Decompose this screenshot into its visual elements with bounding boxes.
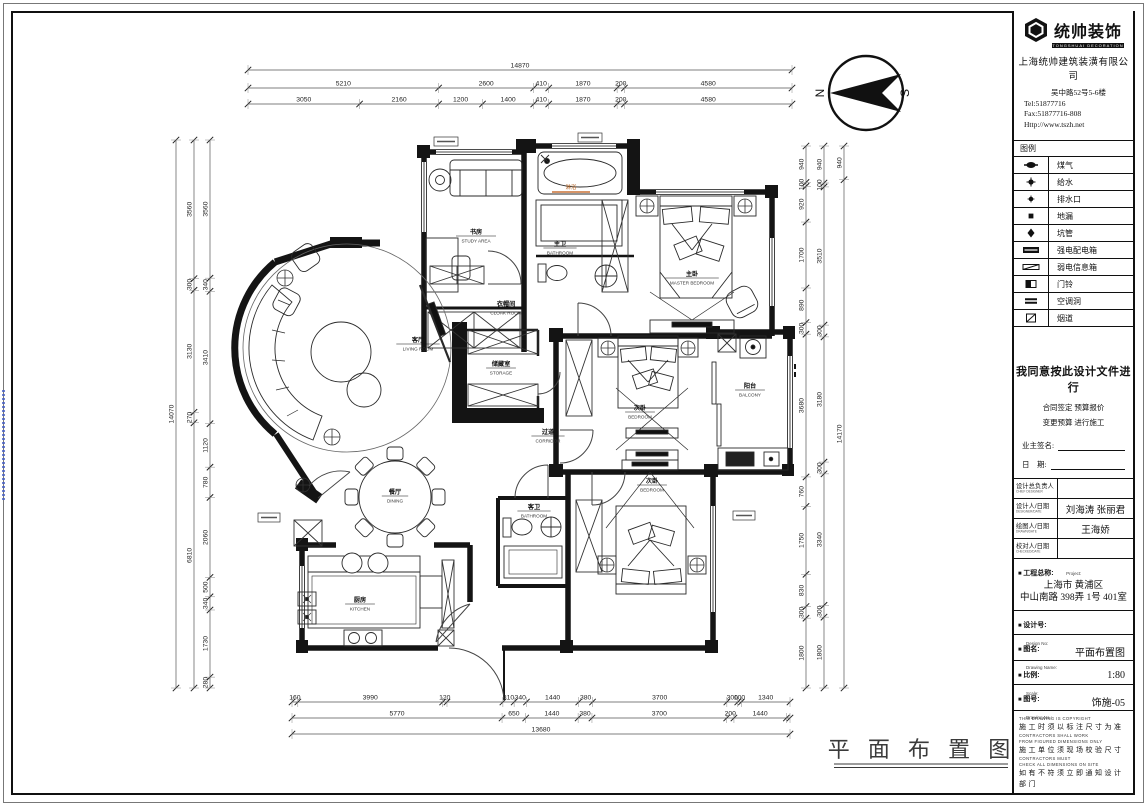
drawing-no-section: 图号: Drawing No.: 饰施-05 [1014,685,1133,711]
dimension-text: 1340 [758,695,773,702]
dimension-text: 410 [536,81,548,88]
svg-text:DINING: DINING [387,499,404,504]
dimension-text: 300 [187,279,194,291]
dimension-text: 14170 [837,424,844,443]
dimension-text: 3130 [187,344,194,359]
flue-icon [1014,310,1049,326]
svg-text:阳台: 阳台 [744,382,756,390]
personnel-sublabel: CHECKED/DATE [1016,550,1053,554]
floor-drain-icon [1014,208,1049,224]
bathtub [538,152,622,194]
dimension-text: 340 [203,279,210,291]
dimension-text: 4580 [701,81,716,88]
agreement-line3: 变更预算 进行施工 [1014,417,1133,428]
dimension-text: 500 [203,581,210,593]
drawing-no-label: 图号: [1018,696,1040,703]
dimension-text: 340 [203,598,210,610]
scale-value: 1:80 [1107,670,1125,681]
legend-row: 排水口 [1014,191,1133,208]
dimension-row: 35603403410112078020605003401730280 [203,137,216,691]
drawing-no-value: 饰施-05 [1092,694,1125,709]
dimension-text: 3340 [817,532,824,547]
note-line: 施工单位须现场校验尺寸 [1019,745,1130,756]
room-label: 主卫BATHROOM [543,240,576,256]
room-label: 餐厅DINING [382,488,408,504]
svg-text:次卧: 次卧 [646,477,659,485]
scale-label: 比例: [1018,672,1040,679]
drain-outlet-icon [1014,191,1049,207]
drawing-no-sublabel: Drawing No.: [1026,715,1052,720]
dimension-text: 650 [508,711,520,718]
svg-text:BALCONY: BALCONY [739,393,761,398]
dimension-text: 380 [579,711,591,718]
personnel-row: 校对人/日期CHECKED/DATE [1014,539,1133,559]
dimension-text: 3050 [296,97,311,104]
title-block: 统帅装饰 TONGSHUAI DECORATION 上海统帅建筑装潢有限公司 吴… [1012,11,1133,793]
brand-logo-subtext: TONGSHUAI DECORATION [1052,43,1123,48]
ac-hole-icon [1014,293,1049,309]
room-label: 厨房KITCHEN [345,596,375,612]
room-label: 过道CORRIDOR [531,428,564,444]
dimension-text: 780 [203,476,210,488]
dimension-text: 3180 [817,392,824,407]
dimension-text: 2600 [479,81,494,88]
scale-section: 比例: Scale: 1:80 [1014,661,1133,685]
svg-text:储藏室: 储藏室 [491,360,511,368]
personnel-label: 设计总负责人CHIEF DESIGNER [1014,479,1058,498]
legend-label: 弱电信息箱 [1049,262,1097,273]
dimension-text: 1440 [544,711,559,718]
svg-text:STUDY AREA: STUDY AREA [461,239,491,244]
dimension-row: 14070 [169,137,182,691]
owner-sign-line [1058,441,1125,451]
bar-stool-2 [368,553,388,573]
bed2-tv-boards [616,388,688,460]
legend-row: 烟道 [1014,310,1133,327]
room-label: 阳台BALCONY [735,382,765,398]
legend-label: 坑管 [1049,228,1073,239]
study-side-table [429,169,451,191]
company-fax: Fax:51877716-808 [1024,109,1133,120]
svg-text:KITCHEN: KITCHEN [350,607,370,612]
water-supply-icon [1014,174,1049,190]
legend-label: 烟道 [1049,313,1073,324]
legend-row: 坑管 [1014,225,1133,242]
legend-label: 排水口 [1049,194,1081,205]
dimension-text: 300 [817,462,824,474]
dimension-text: 340 [515,695,527,702]
personnel-row: 设计总负责人CHIEF DESIGNER [1014,479,1133,499]
drawing-name-value: 平面布置图 [1075,644,1125,659]
dimension-text: 1400 [501,97,516,104]
legend-row: 弱电信息箱 [1014,259,1133,276]
dimension-text: 300 [817,605,824,617]
owner-sign-label: 业主签名: [1022,440,1054,451]
dimension-text: 200 [615,97,627,104]
dimension-text: 3410 [203,350,210,365]
personnel-row: 绘图人/日期DRAWN/DATE王海娇 [1014,519,1133,539]
legend-table: 煤气给水排水口地漏坑管强电配电箱弱电信息箱门铃空调洞烟道 [1014,157,1133,327]
dimension-text: 300 [817,325,824,337]
legend-row: 强电配电箱 [1014,242,1133,259]
svg-text:CLOAK ROOM: CLOAK ROOM [490,311,521,316]
dimension-text: 1870 [575,81,590,88]
dimension-text: 300 [799,322,806,334]
dimension-text: 830 [799,585,806,597]
room-label: 次卧BEDROOM [637,477,667,493]
dimension-text: 2060 [203,530,210,545]
project-section: 工程总称: Project: 上海市 黄浦区 中山南路 398弄 1号 401室 [1014,559,1133,611]
legend-label: 门铃 [1049,279,1073,290]
legend-row: 地漏 [1014,208,1133,225]
personnel-value: 刘海涛 张丽君 [1058,499,1133,518]
room-label: 客厅LIVING ROOM [396,336,439,352]
design-no-section: 设计号: Design No: [1014,611,1133,635]
dimension-text: 14870 [511,63,530,70]
dimension-text: 1800 [817,645,824,660]
svg-text:主卧: 主卧 [686,270,699,278]
room-label: 衣帽间CLOAK ROOM [486,300,526,316]
personnel-sublabel: DRAWN/DATE [1016,530,1053,534]
date-line [1051,460,1125,470]
personnel-label: 设计人/日期DESIGNER/DATE [1014,499,1058,518]
floor-plan: N S 148705210260041018702004580305021601… [0,0,1148,807]
date-label: 日 期: [1022,459,1047,470]
doorbell-icon [1014,276,1049,292]
agreement-section: 我同意按此设计文件进行 合同签定 预算报价 变更预算 进行施工 业主签名: 日 … [1014,327,1133,479]
dimension-row: 5770650144038037002001440 [289,711,793,724]
dimension-row: 1603990120310340144038037003001001340 [289,695,793,708]
bed3 [616,506,686,594]
balcony-slider [712,362,721,446]
dimension-text: 200 [615,81,627,88]
svg-text:过道: 过道 [542,428,555,436]
svg-text:STORAGE: STORAGE [490,371,512,376]
dimension-text: 760 [799,486,806,498]
bar-stool-1 [342,553,362,573]
legend-row: 门铃 [1014,276,1133,293]
stove [344,630,382,646]
personnel-label: 绘图人/日期DRAWN/DATE [1014,519,1058,538]
svg-text:BATHROOM: BATHROOM [547,251,573,256]
dimension-text: 1730 [203,636,210,651]
svg-text:LIVING ROOM: LIVING ROOM [403,347,434,352]
project-value-line2: 中山南路 398弄 1号 401室 [1018,592,1129,604]
dimension-text: 3680 [799,398,806,413]
dimension-text: 6810 [187,548,194,563]
guest-toilet [503,518,532,537]
dimension-text: 1200 [453,97,468,104]
svg-text:客厅: 客厅 [411,336,425,344]
company-web: Http://www.tszh.net [1024,120,1133,131]
low-voltage-box-icon [1014,259,1049,275]
dimension-text: 3990 [363,695,378,702]
dimension-row: 94014170 [837,143,850,691]
personnel-value [1058,539,1133,558]
balcony-sink [718,448,788,470]
personnel-sublabel: DESIGNER/DATE [1016,510,1053,514]
fridge [420,576,442,608]
dimension-text: 1750 [799,533,806,548]
compass: N S [813,56,912,130]
dimension-text: 3700 [652,695,667,702]
room-label: 储藏室STORAGE [486,360,516,376]
personnel-label: 校对人/日期CHECKED/DATE [1014,539,1058,558]
dimension-row: 305021601200140041018702004580 [245,97,795,110]
dimension-text: 14070 [169,404,176,423]
master-sink [595,265,617,287]
dimension-text: 5770 [389,711,404,718]
svg-text:客卫: 客卫 [527,503,541,511]
dimension-row: 13680 [289,727,793,740]
project-sublabel: Project: [1066,571,1081,576]
company-address: 吴中路52号5-6楼 [1024,88,1133,99]
master-toilet [538,264,567,282]
dimension-text: 3560 [187,202,194,217]
brand-section: 统帅装饰 TONGSHUAI DECORATION 上海统帅建筑装潢有限公司 吴… [1014,11,1133,141]
agreement-main: 我同意按此设计文件进行 [1014,363,1133,395]
power-distribution-box-icon [1014,242,1049,258]
legend-row: 空调洞 [1014,293,1133,310]
pit-pipe-icon [1014,225,1049,241]
brand-logo-text: 统帅装饰 [1054,22,1122,41]
room-label: 客卫BATHROOM [517,503,550,519]
guest-shower [504,546,562,578]
svg-text:主卫: 主卫 [554,240,567,248]
dimension-text: 1870 [575,97,590,104]
compass-north: N [813,89,827,98]
dimension-row: 5210260041018702004580 [245,81,795,94]
sheet-title: 平 面 布 置 图 [828,737,1016,762]
personnel-sublabel: CHIEF DESIGNER [1016,490,1053,494]
shower-tag: 淋浴 [565,183,577,191]
legend-label: 给水 [1049,177,1073,188]
study-sofa [450,160,522,196]
dimension-text: 3700 [652,711,667,718]
dimension-text: 270 [187,412,194,424]
personnel-value: 王海娇 [1058,519,1133,538]
dimension-text: 940 [799,158,806,170]
svg-text:餐厅: 餐厅 [389,488,402,496]
agreement-line2: 合同签定 预算报价 [1014,402,1133,413]
personnel-row: 设计人/日期DESIGNER/DATE刘海涛 张丽君 [1014,499,1133,519]
note-line: 如有不符须立即通知设计部门 [1019,768,1130,790]
bath-vanity [536,200,622,246]
design-no-label: 设计号: [1018,622,1047,629]
dimension-row: 356030031302706810 [187,137,200,691]
personnel-table: 设计总负责人CHIEF DESIGNER设计人/日期DESIGNER/DATE刘… [1014,479,1133,559]
dimension-text: 13680 [532,727,551,734]
svg-text:CORRIDOR: CORRIDOR [535,439,561,444]
guest-sink [541,517,561,537]
ceiling-targets-group [277,199,752,572]
project-label: 工程总称: [1018,570,1054,577]
company-tel: Tel:51877716 [1024,99,1133,110]
company-name: 上海统帅建筑装潢有限公司 [1014,54,1133,82]
svg-text:厨房: 厨房 [354,596,366,604]
dimension-text: 1440 [753,711,768,718]
drawing-name-label: 图名: [1018,646,1040,653]
dimension-text: 310 [503,695,515,702]
personnel-value [1058,479,1133,498]
kitchen-counter [308,556,420,628]
dimension-text: 200 [725,711,737,718]
sheet-title-group: 平 面 布 置 图 [828,737,1016,768]
legend-title: 图例 [1014,141,1133,157]
dimension-text: 2160 [392,97,407,104]
dimension-text: 4580 [701,97,716,104]
dining-set [345,447,445,547]
room-label: 主卧MASTER BEDROOM [665,270,719,286]
dimension-text: 940 [837,157,844,169]
drawing-sheet: N S 148705210260041018702004580305021601… [0,0,1148,807]
dimension-text: 300 [799,606,806,618]
legend-label: 强电配电箱 [1049,245,1097,256]
legend-row: 给水 [1014,174,1133,191]
project-value-line1: 上海市 黄浦区 [1018,580,1129,592]
dimension-text: 410 [536,97,548,104]
dimension-text: 3560 [203,201,210,216]
svg-text:BEDROOM: BEDROOM [640,488,664,493]
room-label: 次卧BEDROOM [625,404,655,420]
room-label: 书房STUDY AREA [456,228,496,244]
washing-machine [740,336,766,358]
svg-text:次卧: 次卧 [634,404,647,412]
dimension-row: 9401003510300318030033403001800 [817,143,830,691]
svg-text:BEDROOM: BEDROOM [628,415,652,420]
dimension-text: 940 [817,159,824,171]
dimension-text: 1120 [203,438,210,453]
dimension-text: 920 [799,198,806,210]
svg-text:书房: 书房 [470,228,482,236]
compass-south: S [898,89,912,97]
dimension-text: 380 [580,695,592,702]
dimension-text: 280 [203,677,210,689]
dimension-row: 9401009201700890300368076017508303001800 [799,143,812,691]
brand-logo-icon [1023,17,1049,48]
svg-text:衣帽间: 衣帽间 [497,300,516,308]
living-side-table2 [347,373,381,407]
legend-row: 煤气 [1014,157,1133,174]
dimension-text: 1440 [545,695,560,702]
dimension-text: 3510 [817,248,824,263]
gas-meter-icon [1014,157,1049,173]
bed2-nightstands [598,338,698,357]
legend-label: 空调洞 [1049,296,1081,307]
dimension-row: 14870 [245,63,795,76]
svg-text:BATHROOM: BATHROOM [521,514,547,519]
dimension-text: 5210 [336,81,351,88]
legend-label: 煤气 [1049,160,1073,171]
dimension-text: 890 [799,299,806,311]
dimension-text: 100 [734,695,746,702]
drawing-name-section: 图名: Drawing Name: 平面布置图 [1014,635,1133,661]
dimension-text: 1800 [799,645,806,660]
svg-text:MASTER BEDROOM: MASTER BEDROOM [670,281,714,286]
legend-label: 地漏 [1049,211,1073,222]
master-armchair [723,283,761,321]
dimension-text: 1700 [799,247,806,262]
